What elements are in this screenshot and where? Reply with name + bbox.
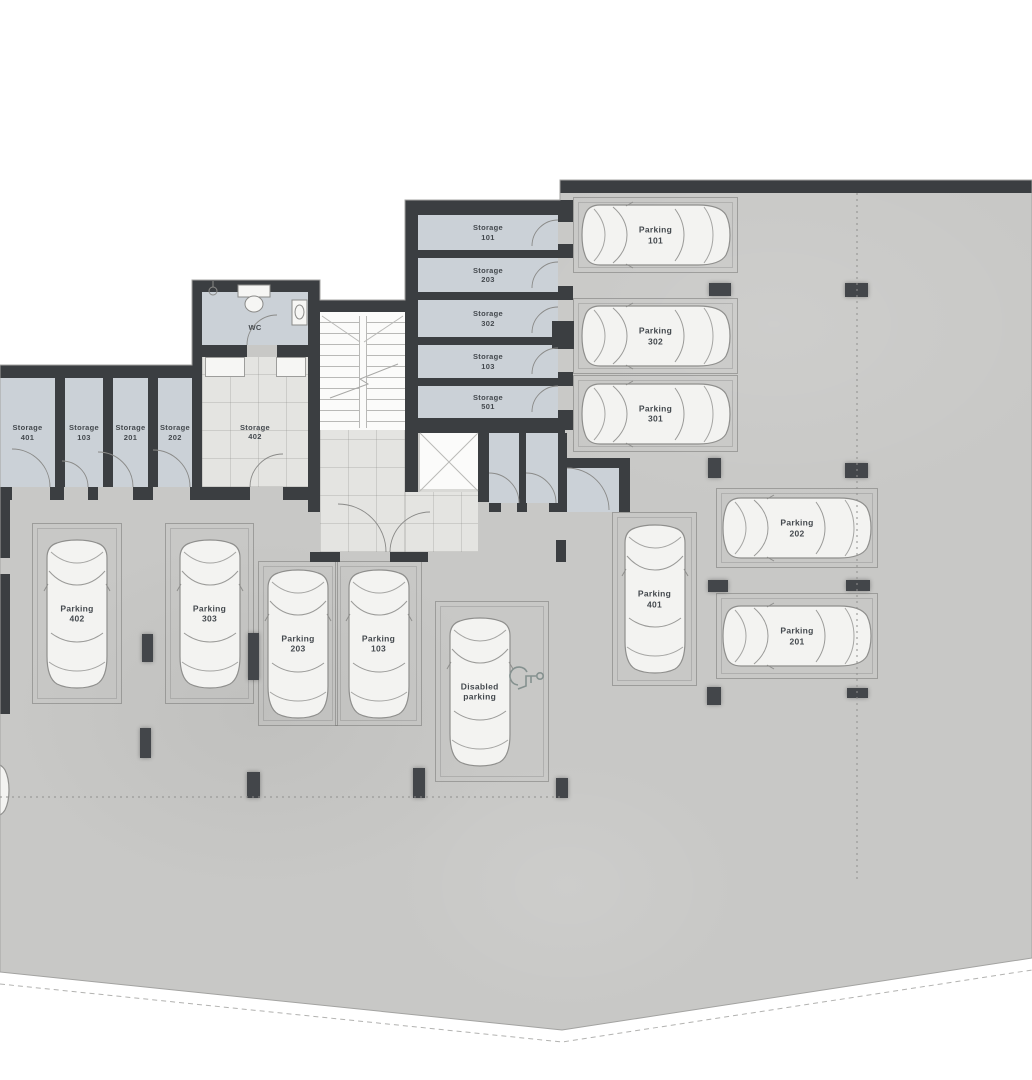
parking-spot-303: Parking303 xyxy=(165,523,254,704)
parking-spot-101: Parking101 xyxy=(573,197,738,273)
stair-divider xyxy=(359,316,367,428)
wall-segment xyxy=(0,574,10,714)
wall-segment xyxy=(103,378,113,487)
wall-segment xyxy=(148,378,158,487)
storage-room-302: Storage302 xyxy=(418,300,558,337)
wall-segment xyxy=(0,487,12,500)
parking-spot-label: Parking301 xyxy=(639,403,672,424)
wall-segment xyxy=(0,500,10,558)
wc-label: WC xyxy=(248,323,261,332)
wall-segment xyxy=(558,433,567,512)
parking-spot-label: Parking401 xyxy=(638,588,671,609)
wall-segment xyxy=(418,292,558,300)
parking-spot-301: Parking301 xyxy=(573,375,738,452)
wall-segment xyxy=(517,503,527,512)
storage-room-401: Storage401 xyxy=(0,378,55,487)
parking-spot-401: Parking401 xyxy=(612,512,697,686)
storage-room-103-left: Storage103 xyxy=(65,378,103,487)
wall-segment xyxy=(192,357,202,500)
wall-segment xyxy=(558,244,573,258)
wall-segment xyxy=(560,180,1032,193)
parking-spot-203: Parking203 xyxy=(258,561,338,726)
wall-segment xyxy=(549,503,558,512)
wall-segment xyxy=(55,378,65,487)
column-pillar xyxy=(248,633,259,680)
storage-room-101: Storage101 xyxy=(418,215,558,250)
column-pillar xyxy=(142,634,153,662)
wall-segment xyxy=(0,365,202,378)
parking-spot-label: Parking101 xyxy=(639,224,672,245)
wall-segment xyxy=(418,250,558,258)
column-pillar xyxy=(707,687,721,705)
column-pillar xyxy=(556,778,568,798)
storage-room-202: Storage202 xyxy=(158,378,192,487)
storage-room-203: Storage203 xyxy=(418,258,558,292)
wall-segment xyxy=(50,487,64,500)
parking-spot-label: Parking103 xyxy=(362,633,395,654)
stair-landing xyxy=(320,430,405,552)
wall-segment xyxy=(558,200,573,222)
elevator-sill xyxy=(420,489,478,492)
wall-segment xyxy=(320,300,418,312)
elevator-shaft xyxy=(420,433,478,491)
column-pillar xyxy=(247,772,260,798)
parking-spot-label: Parking402 xyxy=(60,603,93,624)
wall-segment xyxy=(478,423,489,502)
partial-car-icon xyxy=(0,757,11,823)
wall-segment xyxy=(418,337,558,345)
wall-segment xyxy=(619,458,630,512)
wall-segment xyxy=(202,345,247,357)
parking-spot-label: Parking201 xyxy=(780,625,813,646)
shaft-niche xyxy=(276,357,306,377)
wall-segment xyxy=(88,487,98,500)
column-pillar xyxy=(708,580,728,592)
parking-spot-disabled: Disabledparking xyxy=(435,601,549,782)
storage-room-103-top: Storage103 xyxy=(418,345,558,378)
wc-room: WC xyxy=(202,292,308,345)
column-pillar xyxy=(140,728,151,758)
wall-segment xyxy=(552,321,574,349)
column-pillar xyxy=(709,283,731,296)
utility-room xyxy=(567,468,619,512)
column-pillar xyxy=(846,580,870,591)
utility-room xyxy=(489,433,519,503)
wall-segment xyxy=(405,200,573,215)
storage-room-501: Storage501 xyxy=(418,386,558,418)
parking-spot-201: Parking201 xyxy=(716,593,878,679)
elevator-lobby xyxy=(405,492,478,552)
wall-segment xyxy=(390,552,428,562)
parking-spot-103: Parking103 xyxy=(335,561,422,726)
floor-plan: Parking101 Parking302 Parking301 Parking… xyxy=(0,0,1032,1080)
column-pillar xyxy=(413,768,425,798)
wall-segment xyxy=(558,286,573,300)
wall-segment xyxy=(405,200,418,492)
wall-segment xyxy=(133,487,153,500)
parking-spot-label: Parking202 xyxy=(780,517,813,538)
utility-room xyxy=(526,433,558,503)
parking-spot-label: Parking303 xyxy=(193,603,226,624)
wall-segment xyxy=(489,503,501,512)
column-pillar xyxy=(847,688,868,698)
parking-spot-label: Parking203 xyxy=(281,633,314,654)
wall-segment xyxy=(489,423,565,433)
parking-spot-402: Parking402 xyxy=(32,523,122,704)
shaft-niche xyxy=(205,357,245,377)
parking-spot-label: Disabledparking xyxy=(461,681,499,702)
wall-segment xyxy=(418,378,558,386)
wall-segment xyxy=(418,423,480,433)
parking-spot-label: Parking302 xyxy=(639,325,672,346)
wall-segment xyxy=(283,487,311,500)
column-pillar xyxy=(708,458,721,478)
wall-segment xyxy=(556,540,566,562)
column-pillar xyxy=(845,463,868,478)
parking-spot-302: Parking302 xyxy=(573,298,738,374)
parking-spot-202: Parking202 xyxy=(716,488,878,568)
wall-segment xyxy=(308,280,320,512)
column-pillar xyxy=(845,283,868,297)
wall-segment xyxy=(310,552,340,562)
wall-segment xyxy=(519,433,526,503)
wall-segment xyxy=(190,487,202,500)
wall-segment xyxy=(277,345,308,357)
storage-room-201: Storage201 xyxy=(113,378,148,487)
wall-segment xyxy=(202,487,250,500)
wall-segment xyxy=(558,372,573,386)
wall-segment xyxy=(192,280,320,292)
